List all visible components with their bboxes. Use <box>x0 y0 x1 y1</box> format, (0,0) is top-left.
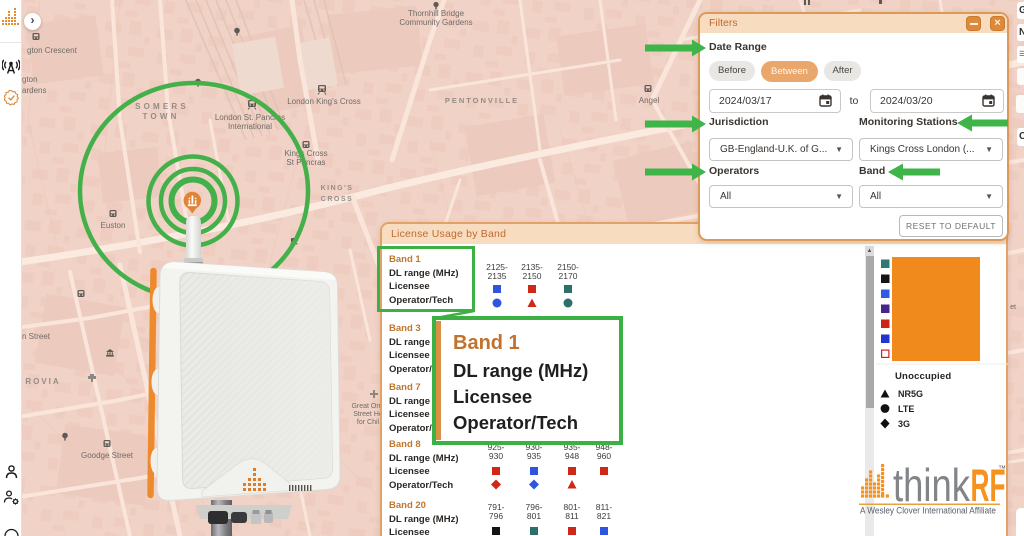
svg-text:LTE: LTE <box>898 404 914 414</box>
svg-text:NR5G: NR5G <box>898 389 923 399</box>
svg-text:3G: 3G <box>898 419 910 429</box>
svg-text:A Wesley Clover International: A Wesley Clover International Affiliate <box>860 506 996 516</box>
svg-text:think: think <box>893 459 971 511</box>
svg-text:Unoccupied: Unoccupied <box>895 371 951 382</box>
svg-text:™: ™ <box>998 464 1006 473</box>
